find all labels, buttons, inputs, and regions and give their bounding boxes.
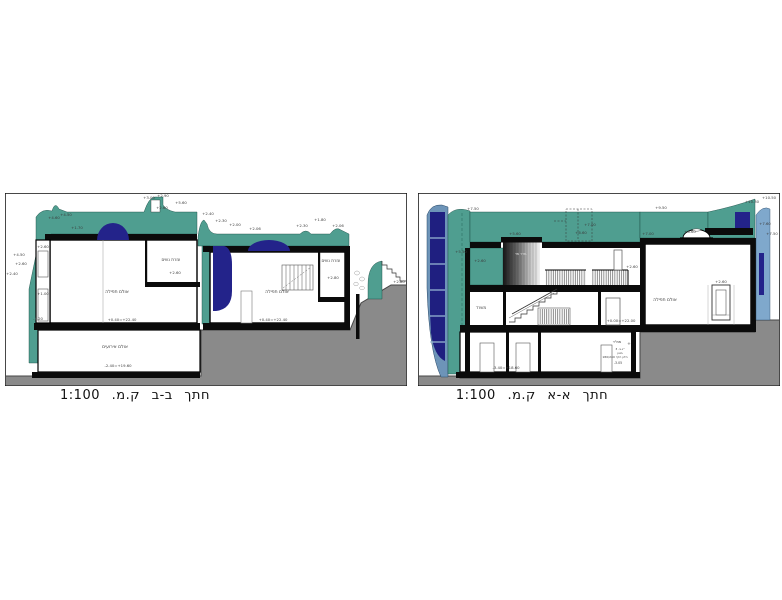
elevation-label: +0.40=+22.40 bbox=[259, 317, 288, 322]
elevation-label: +2.60 bbox=[15, 261, 27, 266]
door bbox=[241, 291, 252, 323]
outer-wall bbox=[345, 252, 350, 323]
elevation-label: +1.80 bbox=[314, 217, 326, 222]
elevation-label: +2.06 bbox=[332, 223, 344, 228]
elevation-label: +0.00=+22.00 bbox=[607, 318, 636, 323]
elevation-label: +5.60 bbox=[509, 231, 521, 236]
navy-glass-panels bbox=[430, 212, 445, 361]
elevation-label: +2.60 bbox=[37, 244, 49, 249]
elevation-label: +10.30 bbox=[745, 199, 760, 204]
section-aa-title: חתך א-א ק.מ. 1:100 bbox=[451, 388, 613, 403]
floor-slab bbox=[470, 285, 640, 292]
elevation-label: +7.50 bbox=[766, 231, 778, 236]
elevation-label: +4.50 bbox=[60, 212, 72, 217]
navy-pillar bbox=[213, 246, 232, 311]
section-bb-panel: +3.00+2.90+5.60+2.60+4.60+4.50+4.50+2.60… bbox=[5, 193, 407, 386]
room-label: עזרת נשים bbox=[322, 258, 341, 263]
room-label: חדר מד. bbox=[515, 252, 527, 256]
elevation-label: +2.30 bbox=[296, 223, 308, 228]
door bbox=[38, 251, 48, 277]
section-aa-drawing: +7.50+5.50+2.60+5.60+7.00+6.60+9.50+7.00… bbox=[418, 193, 780, 386]
elevation-label: +2.60 bbox=[156, 205, 168, 210]
elevation-label: +1.70 bbox=[71, 225, 83, 230]
elevation-label: -1.20 bbox=[33, 316, 43, 321]
cylinder-cap bbox=[501, 237, 542, 243]
roof-slab bbox=[542, 242, 640, 248]
prayer-hall-room bbox=[645, 244, 751, 325]
wall bbox=[503, 292, 506, 325]
elevation-label: -3.05 bbox=[614, 361, 622, 365]
elevation-label: +5.60 bbox=[175, 200, 187, 205]
elevation-label: +7.00 bbox=[584, 222, 596, 227]
elevation-label: +2.90 bbox=[157, 193, 169, 198]
retaining-wall bbox=[356, 294, 360, 339]
mezzanine-wall bbox=[145, 240, 147, 287]
room-label: עזרת נשים bbox=[162, 257, 181, 262]
elevation-label: -2.40=+19.60 bbox=[104, 363, 132, 368]
high-roof-slab bbox=[705, 228, 753, 235]
elevation-label: -3.40=+18.60 bbox=[492, 365, 520, 370]
elevation-label: +4.50 bbox=[13, 252, 25, 257]
basement-wall bbox=[631, 332, 636, 372]
elevation-label: +2.06 bbox=[249, 226, 261, 231]
elevation-label: +0.40=+22.40 bbox=[108, 317, 137, 322]
outer-wall bbox=[751, 238, 756, 332]
elevation-label: +2.00 bbox=[229, 222, 241, 227]
stair-cylinder bbox=[501, 237, 542, 285]
elevation-label: +3.00 bbox=[143, 195, 155, 200]
floor-slab bbox=[203, 323, 350, 330]
elevation-label: +2.80 bbox=[327, 275, 339, 280]
basement-wall bbox=[538, 332, 541, 372]
drawing-sheet: +3.00+2.90+5.60+2.60+4.60+4.50+4.50+2.60… bbox=[0, 0, 782, 600]
section-bb-drawing: +3.00+2.90+5.60+2.60+4.60+4.50+4.50+2.60… bbox=[5, 193, 407, 386]
elevation-label: +7.50 bbox=[467, 206, 479, 211]
section-bb-title: חתך ב-ב ק.מ. 1:100 bbox=[52, 388, 218, 403]
elevation-label: +2.40 bbox=[202, 211, 214, 216]
elevation-label: +2.30 bbox=[215, 218, 227, 223]
prayer-hall-left-room bbox=[50, 240, 197, 323]
elevation-label: +7.60 bbox=[759, 221, 771, 226]
elevation-label: 180/240 חלון הדף bbox=[602, 355, 627, 359]
wall bbox=[598, 292, 601, 325]
elevation-label: +2.40 bbox=[6, 271, 18, 276]
room-label: אולם תפילה bbox=[265, 290, 288, 295]
elevation-label: +10.50 bbox=[762, 195, 777, 200]
roof-slab bbox=[470, 242, 501, 248]
room-label: אולם אירועים bbox=[102, 345, 128, 350]
elevation-label: +1.00 bbox=[37, 291, 49, 296]
section-aa-panel: +7.50+5.50+2.60+5.60+7.00+6.60+9.50+7.00… bbox=[418, 193, 780, 386]
navy-glass-box bbox=[735, 212, 750, 228]
mezzanine-wall bbox=[318, 252, 320, 302]
floor-slab bbox=[34, 323, 200, 330]
door bbox=[614, 250, 622, 270]
elevation-label: +2.60 bbox=[474, 258, 486, 263]
elevation-label: +2.60 bbox=[169, 270, 181, 275]
elevation-label: +2.60 bbox=[715, 279, 727, 284]
elevation-label: +4.60 bbox=[48, 215, 60, 220]
room-label: אולם תפילה bbox=[653, 298, 676, 303]
torah-ark bbox=[708, 285, 734, 325]
elevation-label: + bbox=[627, 341, 631, 347]
wall bbox=[640, 244, 645, 325]
interior-stair bbox=[282, 265, 313, 290]
elevation-label: +2.80 bbox=[393, 279, 405, 284]
elevation-label: +5.50 bbox=[455, 249, 467, 254]
room-label: אולם תפילה bbox=[105, 290, 128, 295]
elevation-label: +6.60 bbox=[684, 229, 696, 234]
navy-glass-strip bbox=[759, 253, 764, 295]
mezzanine-slab bbox=[145, 282, 200, 287]
elevation-label: +9.50 bbox=[655, 205, 667, 210]
floor-slab bbox=[460, 325, 755, 332]
elevation-label: +2.60 bbox=[626, 264, 638, 269]
room-label: משרד bbox=[476, 305, 487, 310]
room-label: ממ"ד bbox=[613, 340, 622, 344]
elevation-label: +7.00 bbox=[642, 231, 654, 236]
outer-wall bbox=[465, 248, 470, 372]
roof-slab bbox=[640, 238, 755, 244]
elevation-label: +6.60 bbox=[575, 230, 587, 235]
basement-slab bbox=[456, 372, 640, 378]
basement-slab bbox=[32, 372, 200, 378]
